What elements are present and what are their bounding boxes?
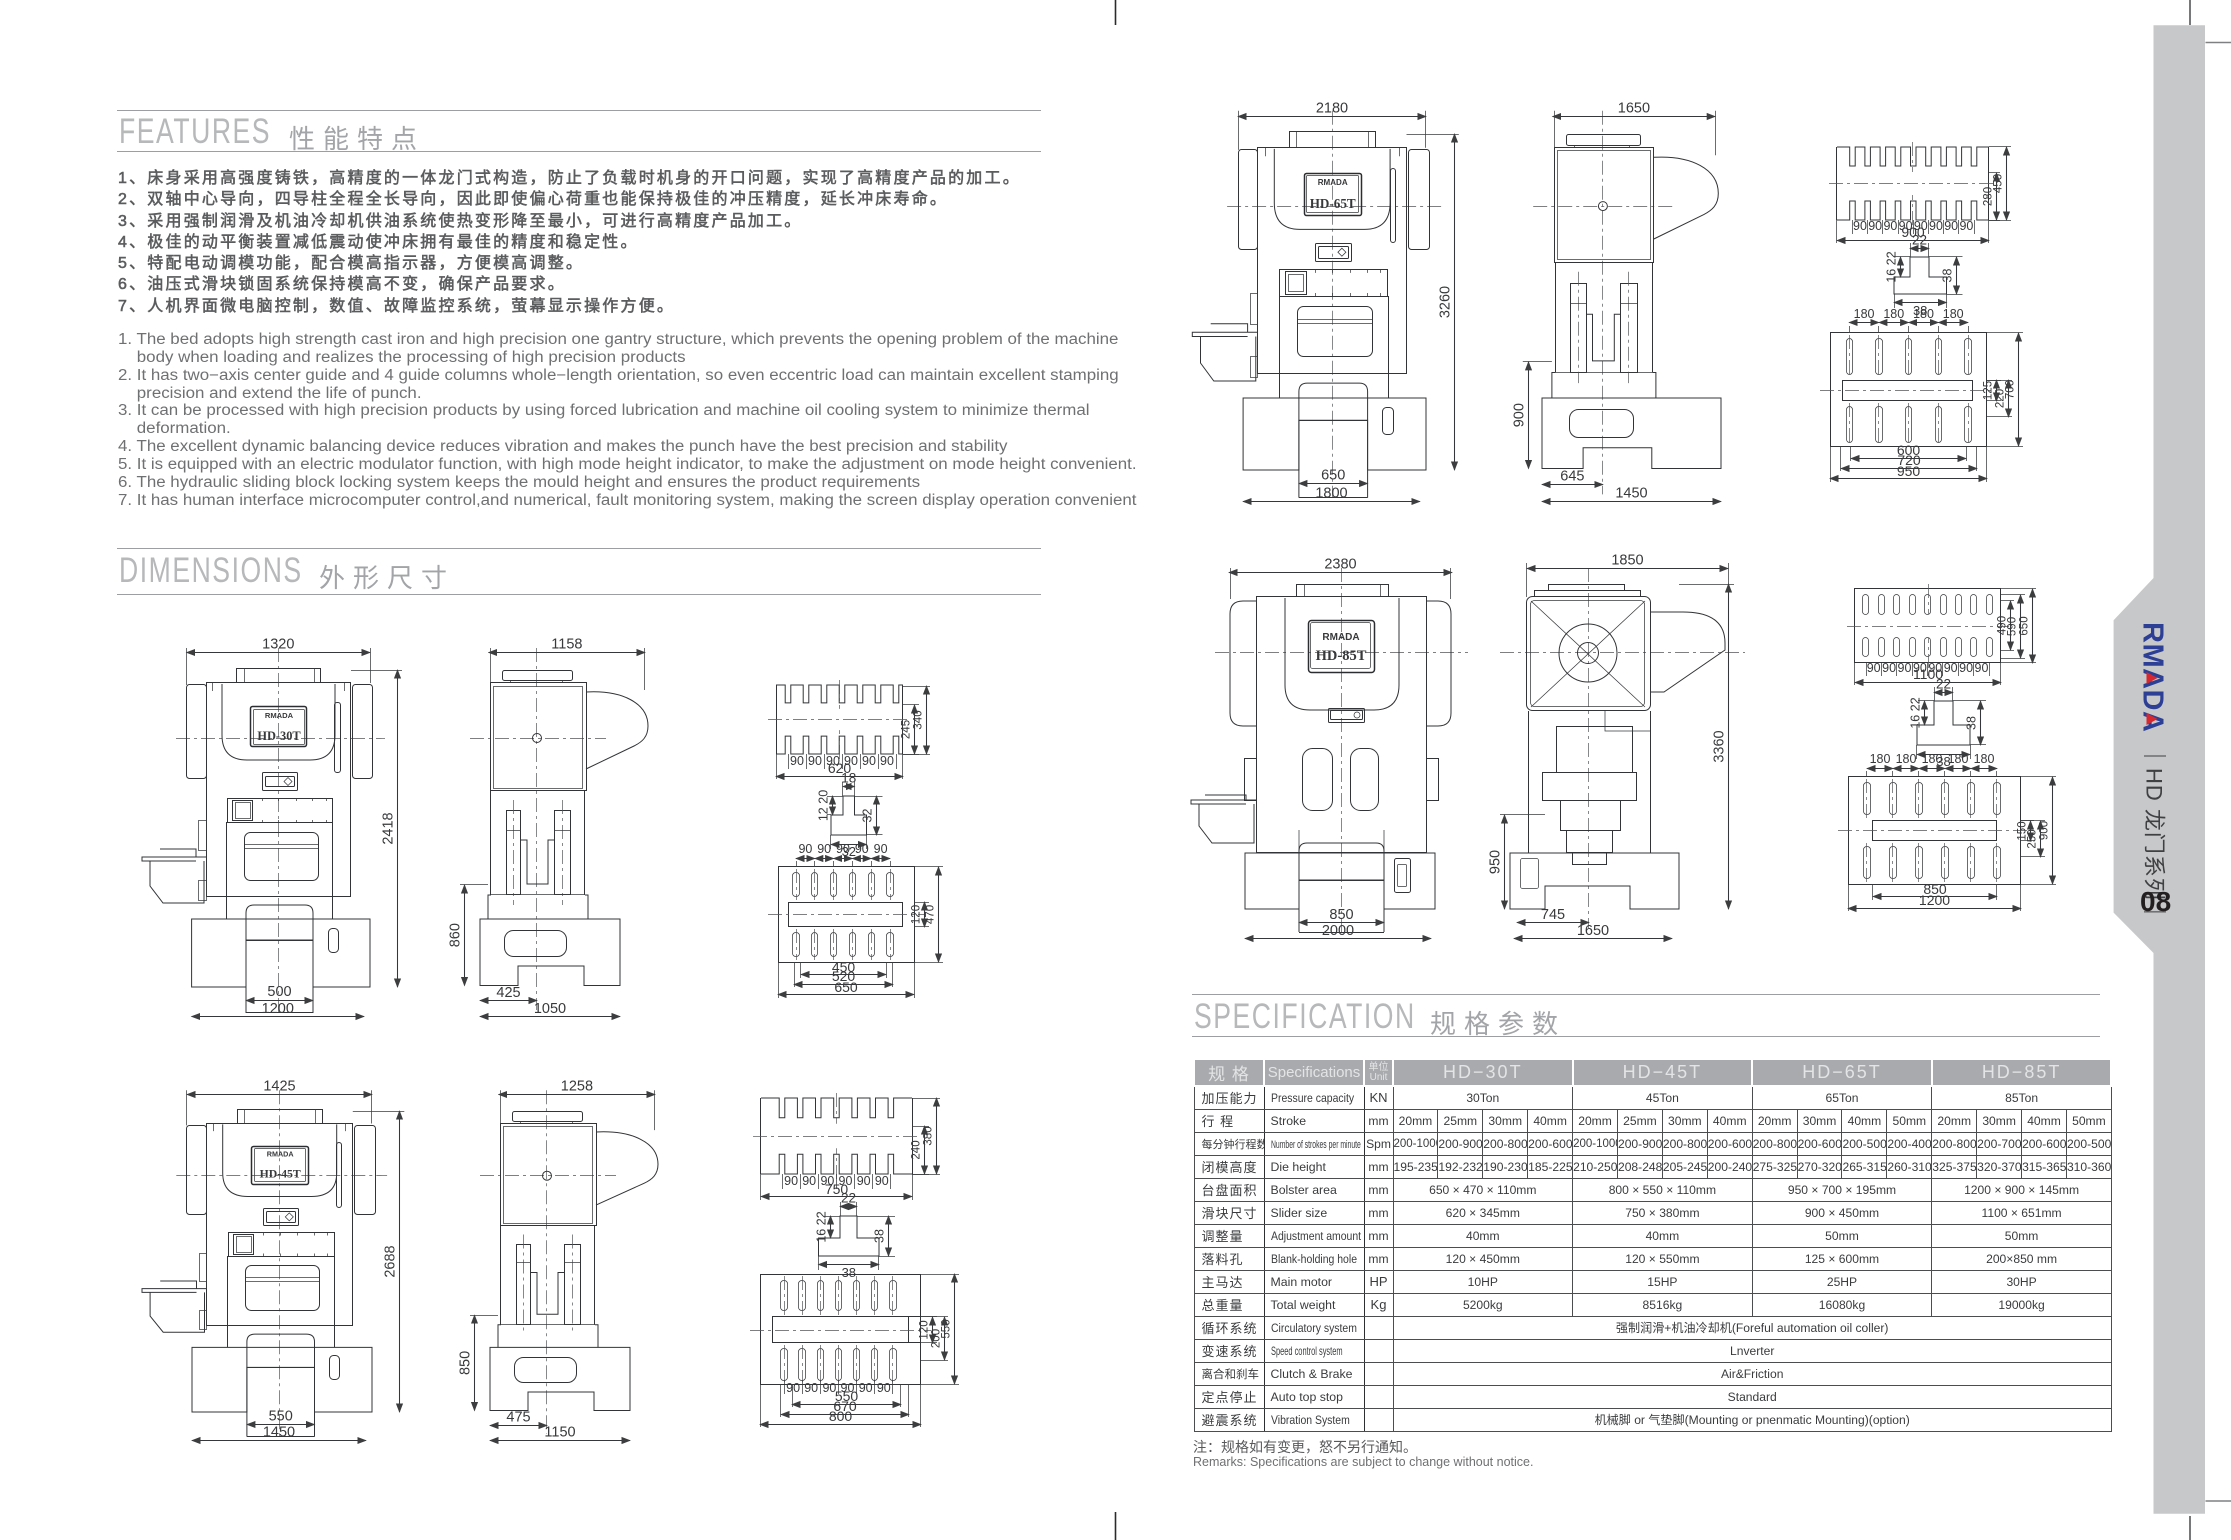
- svg-text:90: 90: [880, 754, 894, 768]
- svg-text:900: 900: [1512, 403, 1528, 427]
- svg-text:38: 38: [873, 1229, 887, 1243]
- svg-text:90: 90: [817, 842, 831, 856]
- svg-text:90: 90: [855, 842, 869, 856]
- svg-text:180: 180: [1870, 752, 1891, 766]
- svg-text:12 20: 12 20: [817, 790, 831, 821]
- svg-text:800: 800: [829, 1408, 853, 1424]
- svg-text:550: 550: [941, 1319, 953, 1338]
- svg-text:180: 180: [1854, 307, 1875, 321]
- svg-text:500: 500: [267, 984, 291, 1000]
- svg-text:RMADA: RMADA: [1318, 178, 1348, 187]
- svg-text:HD-45T: HD-45T: [260, 1168, 301, 1181]
- svg-text:120: 120: [919, 1320, 931, 1339]
- svg-text:90: 90: [1944, 661, 1958, 675]
- svg-text:90: 90: [1883, 219, 1897, 233]
- svg-text:90: 90: [836, 842, 850, 856]
- svg-text:90: 90: [1929, 219, 1943, 233]
- svg-text:590: 590: [2007, 617, 2019, 636]
- svg-text:22: 22: [1936, 677, 1951, 692]
- svg-text:1650: 1650: [1577, 923, 1609, 939]
- svg-text:120: 120: [911, 905, 923, 924]
- svg-text:HD-30T: HD-30T: [257, 729, 301, 743]
- svg-text:38: 38: [1941, 269, 1955, 283]
- svg-text:180: 180: [1883, 307, 1904, 321]
- svg-text:90: 90: [1898, 661, 1912, 675]
- svg-text:850: 850: [1329, 907, 1353, 923]
- svg-text:90: 90: [784, 1174, 798, 1188]
- svg-text:180: 180: [1896, 752, 1917, 766]
- svg-text:90: 90: [804, 1381, 818, 1395]
- svg-text:645: 645: [1560, 469, 1584, 485]
- svg-text:3360: 3360: [1712, 730, 1728, 762]
- svg-text:2688: 2688: [383, 1245, 399, 1277]
- svg-text:850: 850: [458, 1351, 474, 1375]
- svg-text:90: 90: [1853, 219, 1867, 233]
- svg-text:90: 90: [857, 1174, 871, 1188]
- svg-text:32: 32: [861, 809, 875, 823]
- svg-text:HD-85T: HD-85T: [1316, 648, 1367, 664]
- svg-text:650: 650: [2019, 616, 2031, 635]
- svg-text:90: 90: [802, 1174, 816, 1188]
- svg-text:1200: 1200: [1919, 892, 1950, 908]
- svg-text:950: 950: [1897, 463, 1921, 479]
- svg-text:90: 90: [859, 1381, 873, 1395]
- svg-text:2380: 2380: [1324, 557, 1356, 573]
- svg-text:16 22: 16 22: [815, 1211, 829, 1242]
- svg-text:1450: 1450: [263, 1425, 295, 1441]
- svg-text:180: 180: [1948, 752, 1969, 766]
- svg-text:180: 180: [1943, 307, 1964, 321]
- svg-text:650: 650: [1321, 468, 1345, 484]
- svg-text:1200: 1200: [262, 1001, 294, 1017]
- svg-text:38: 38: [842, 1265, 856, 1280]
- svg-text:90: 90: [1868, 219, 1882, 233]
- svg-text:90: 90: [1882, 661, 1896, 675]
- svg-text:550: 550: [269, 1409, 293, 1425]
- svg-text:950: 950: [1488, 850, 1504, 874]
- svg-text:90: 90: [841, 1381, 855, 1395]
- svg-text:90: 90: [877, 1381, 891, 1395]
- svg-text:1158: 1158: [551, 637, 582, 653]
- svg-text:1258: 1258: [561, 1079, 593, 1095]
- svg-text:1800: 1800: [1315, 486, 1347, 502]
- svg-text:2000: 2000: [1322, 923, 1354, 939]
- svg-text:2180: 2180: [1316, 101, 1348, 117]
- svg-text:1425: 1425: [263, 1079, 295, 1095]
- svg-text:RMADA: RMADA: [1322, 632, 1359, 643]
- svg-text:470: 470: [925, 905, 937, 924]
- svg-text:16 22: 16 22: [1909, 697, 1923, 728]
- svg-text:1450: 1450: [1615, 486, 1647, 502]
- svg-text:90: 90: [798, 842, 812, 856]
- svg-text:860: 860: [448, 923, 464, 947]
- svg-text:250: 250: [2027, 829, 2039, 848]
- svg-text:245: 245: [901, 720, 913, 739]
- svg-text:90: 90: [862, 754, 876, 768]
- svg-text:340: 340: [913, 710, 925, 729]
- svg-text:3260: 3260: [1438, 286, 1454, 318]
- svg-text:90: 90: [1867, 661, 1881, 675]
- svg-text:380: 380: [923, 1126, 935, 1145]
- svg-text:16 22: 16 22: [1885, 251, 1899, 282]
- svg-text:RMADA: RMADA: [267, 1150, 295, 1159]
- svg-text:1150: 1150: [544, 1425, 575, 1441]
- svg-text:1320: 1320: [262, 637, 294, 653]
- svg-text:90: 90: [1944, 219, 1958, 233]
- svg-text:22: 22: [841, 1191, 856, 1206]
- svg-text:90: 90: [874, 842, 888, 856]
- svg-text:1650: 1650: [1618, 101, 1650, 117]
- svg-text:38: 38: [1965, 716, 1979, 730]
- svg-text:90: 90: [1959, 661, 1973, 675]
- svg-text:650: 650: [834, 979, 858, 995]
- svg-text:HD-65T: HD-65T: [1310, 196, 1356, 211]
- svg-text:90: 90: [790, 754, 804, 768]
- svg-text:90: 90: [786, 1381, 800, 1395]
- svg-text:180: 180: [1974, 752, 1995, 766]
- svg-text:240: 240: [911, 1140, 923, 1159]
- svg-text:90: 90: [875, 1174, 889, 1188]
- svg-text:2418: 2418: [381, 812, 397, 844]
- svg-text:425: 425: [496, 985, 520, 1001]
- svg-text:90: 90: [822, 1381, 836, 1395]
- svg-text:22: 22: [1912, 233, 1927, 248]
- svg-text:1050: 1050: [534, 1001, 566, 1017]
- svg-text:90: 90: [1975, 661, 1989, 675]
- svg-text:900: 900: [2039, 821, 2051, 840]
- svg-text:1850: 1850: [1611, 553, 1643, 569]
- svg-text:90: 90: [808, 754, 822, 768]
- svg-text:18: 18: [841, 771, 856, 786]
- svg-text:125: 125: [1983, 381, 1995, 400]
- svg-text:450: 450: [1993, 174, 2005, 193]
- svg-text:745: 745: [1541, 907, 1565, 923]
- svg-text:RMADA: RMADA: [265, 711, 294, 720]
- svg-text:90: 90: [1959, 219, 1973, 233]
- svg-text:700: 700: [2005, 380, 2017, 399]
- svg-text:180: 180: [1913, 307, 1934, 321]
- svg-text:180: 180: [1922, 752, 1943, 766]
- svg-text:475: 475: [506, 1410, 530, 1426]
